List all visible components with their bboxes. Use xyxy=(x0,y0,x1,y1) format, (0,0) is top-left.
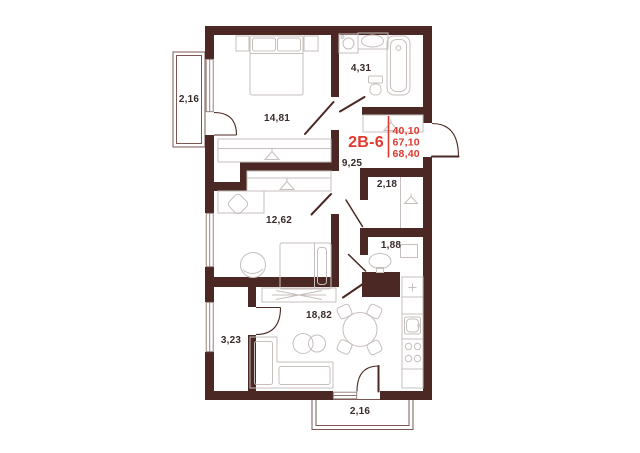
wall-left-b xyxy=(205,135,214,213)
bathtub xyxy=(387,36,410,95)
wall-bath-bottom xyxy=(362,107,423,115)
apartment-info: 2В-6 40,10 67,10 68,40 xyxy=(348,116,420,160)
dining-chair xyxy=(366,303,383,319)
wall-closet-top xyxy=(360,168,423,177)
area-total-balcony-value: 68,40 xyxy=(393,148,420,160)
door-leaf-bedroom2-hall xyxy=(312,194,332,215)
door-leaf-closet xyxy=(346,200,363,227)
floor-plan: 2,16 14,81 4,31 9,25 12,62 2,18 1,88 18,… xyxy=(0,0,640,453)
wall-bedroom2-hall xyxy=(331,214,339,287)
stove-burners xyxy=(405,343,420,361)
room-area-bedroom2: 12,62 xyxy=(266,215,292,226)
room-area-pantry: 3,23 xyxy=(221,335,242,346)
apartment-code: 2В-6 xyxy=(348,134,384,151)
room-area-bedroom: 14,81 xyxy=(264,113,290,124)
room-area-hallway: 9,25 xyxy=(342,158,363,169)
door-balcony-bedroom xyxy=(214,113,237,136)
toilet xyxy=(369,76,383,95)
wardrobe-bedroom xyxy=(218,139,331,162)
washing-machine xyxy=(339,34,358,53)
wc-sink xyxy=(369,254,391,269)
room-area-balcony-top: 2,16 xyxy=(179,94,200,105)
bedroom-furniture xyxy=(218,36,331,162)
dining-chair xyxy=(336,303,353,319)
wall-pantry-a xyxy=(248,287,256,307)
wall-divider-right xyxy=(240,162,339,171)
double-bed xyxy=(250,36,303,95)
dining-chair xyxy=(336,339,353,355)
room-area-balcony-bottom: 2,16 xyxy=(350,406,371,417)
wall-bottom-a xyxy=(205,391,333,400)
room-area-living: 18,82 xyxy=(306,310,332,321)
armchair-pouf xyxy=(241,253,266,278)
room-area-bathroom: 4,31 xyxy=(351,63,372,74)
door-leaf-bedroom-hall xyxy=(305,102,334,134)
window-bedroom xyxy=(206,59,214,112)
bathroom-sink xyxy=(358,33,388,49)
kitchen-counter xyxy=(402,277,423,388)
corner-sofa xyxy=(250,337,333,388)
kitchen-sink xyxy=(405,317,421,334)
door-pantry xyxy=(256,308,281,335)
dining-chair xyxy=(366,339,383,355)
nightstand-left xyxy=(236,36,249,51)
area-total-value: 67,10 xyxy=(393,137,420,149)
hanger-icon xyxy=(405,194,418,204)
wc-boiler xyxy=(401,245,418,258)
dining-set xyxy=(336,303,383,355)
wall-top xyxy=(205,26,432,35)
desk xyxy=(218,191,264,213)
wall-closet-wc xyxy=(362,228,423,237)
wall-left-a xyxy=(205,26,214,59)
door-balcony-living xyxy=(357,366,379,392)
floor-plan-canvas: 2,16 14,81 4,31 9,25 12,62 2,18 1,88 18,… xyxy=(0,0,640,453)
nightstand-right xyxy=(304,36,318,51)
room-area-closet: 2,18 xyxy=(377,179,398,190)
door-leaf-wc xyxy=(349,255,366,272)
area-living-value: 40,10 xyxy=(393,125,420,137)
wall-bedroom-bath xyxy=(331,26,339,97)
wardrobe-bedroom2 xyxy=(247,171,331,191)
window-living-bottom xyxy=(333,392,357,399)
wall-bottom-b xyxy=(380,391,432,400)
door-entry xyxy=(432,124,459,157)
room-area-wc: 1,88 xyxy=(381,240,402,251)
hanger-icon xyxy=(280,179,294,190)
desk-chair xyxy=(227,193,250,216)
wall-right-b xyxy=(423,157,432,400)
closet-interior xyxy=(401,177,418,228)
wall-living-top xyxy=(205,277,339,287)
coffee-table xyxy=(293,334,326,354)
wall-right-a xyxy=(423,26,432,123)
window-pantry xyxy=(206,302,214,352)
hanger-icon xyxy=(265,149,279,160)
wall-divider-left xyxy=(205,182,247,191)
door-leaf-bathroom xyxy=(340,97,365,112)
window-bedroom2 xyxy=(206,213,214,267)
bathroom-fixtures xyxy=(339,33,410,95)
wall-wc-block xyxy=(362,272,400,297)
plus-icon xyxy=(409,284,417,292)
tv-console xyxy=(262,288,336,302)
